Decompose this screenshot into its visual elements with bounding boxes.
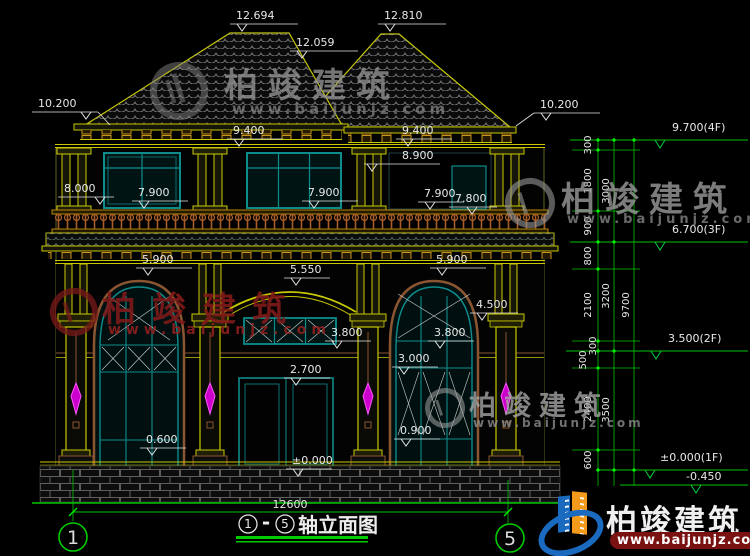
title-text: 轴立面图 xyxy=(298,513,378,537)
label-valley: 12.059 xyxy=(296,36,335,49)
axis-number-left: 1 xyxy=(67,527,79,549)
f2-window-center xyxy=(247,153,341,208)
cad-elevation-screenshot: 12600 1 5 1 - 5 轴立面图 xyxy=(0,0,750,556)
level-2f: 3.500(2F) xyxy=(668,332,721,345)
axis-bubble-right: 5 xyxy=(496,524,524,552)
label-f2-sill-a: 7.900 xyxy=(138,186,170,199)
chain-dim: 3500 xyxy=(601,397,612,422)
chain-dim: 300 xyxy=(583,135,594,154)
skirt-roof xyxy=(42,233,558,264)
label-f2-sill-c: 7.900 xyxy=(424,187,456,200)
eave-cornice xyxy=(74,124,516,143)
label-capital-right: 4.500 xyxy=(476,298,508,311)
f2-balustrade xyxy=(52,210,548,233)
label-transom-entry: 3.800 xyxy=(331,326,363,339)
chain-dim: 600 xyxy=(583,450,594,469)
title-separator: - xyxy=(262,510,270,534)
arched-window-right xyxy=(390,281,478,469)
label-transom-right: 3.800 xyxy=(434,326,466,339)
chain-dim: 300 xyxy=(588,336,599,355)
level-1f: ±0.000(1F) xyxy=(660,451,723,464)
chain-dim: 800 xyxy=(583,246,594,265)
label-ridge-right: 12.810 xyxy=(384,9,423,22)
label-f2-window-left: 8.000 xyxy=(64,182,96,195)
plinth xyxy=(40,462,560,502)
label-eave-board-right: 9.400 xyxy=(402,124,434,137)
label-ground: ±0.000 xyxy=(292,454,333,467)
label-sill-left-low: 0.600 xyxy=(146,433,178,446)
label-f2-floor: 7.800 xyxy=(455,192,487,205)
label-sill-right-low: 0.900 xyxy=(400,424,432,437)
chain-dim: 500 xyxy=(578,350,589,369)
level-4f: 9.700(4F) xyxy=(672,121,725,134)
chain-dim: 2100 xyxy=(583,292,594,317)
chain-dim: 2400 xyxy=(583,396,594,421)
level-below-grade: -0.450 xyxy=(686,470,721,483)
title-axis-start: 1 xyxy=(244,517,252,531)
chain-dim: 3200 xyxy=(601,283,612,308)
level-3f: 6.700(3F) xyxy=(672,223,725,236)
label-ridge-left: 12.694 xyxy=(236,9,275,22)
label-transom-right-low: 3.000 xyxy=(398,352,430,365)
f2-window-left xyxy=(104,153,180,208)
label-eave-right: 10.200 xyxy=(540,98,579,111)
chain-dim: 9700 xyxy=(621,292,632,317)
label-arch-entry: 5.550 xyxy=(290,263,322,276)
title-axis-end: 5 xyxy=(281,517,289,531)
total-width-dim: 12600 xyxy=(273,498,308,511)
label-eave-board-left: 9.400 xyxy=(233,124,265,137)
label-door-head: 2.700 xyxy=(290,363,322,376)
label-eave-left: 10.200 xyxy=(38,97,77,110)
entry-transom-window xyxy=(244,318,336,344)
chain-dim: 1800 xyxy=(583,168,594,193)
chain-dim: 900 xyxy=(583,216,594,235)
label-arch-right: 5.900 xyxy=(436,253,468,266)
axis-bubble-left: 1 xyxy=(59,523,87,551)
label-f2-sill-b: 7.900 xyxy=(308,186,340,199)
label-f2-opening: 8.900 xyxy=(402,149,434,162)
elevation-drawing: 12600 1 5 1 - 5 轴立面图 xyxy=(0,0,750,556)
label-arch-left: 5.900 xyxy=(142,253,174,266)
axis-number-right: 5 xyxy=(504,528,516,550)
chain-dim: 3000 xyxy=(601,178,612,203)
